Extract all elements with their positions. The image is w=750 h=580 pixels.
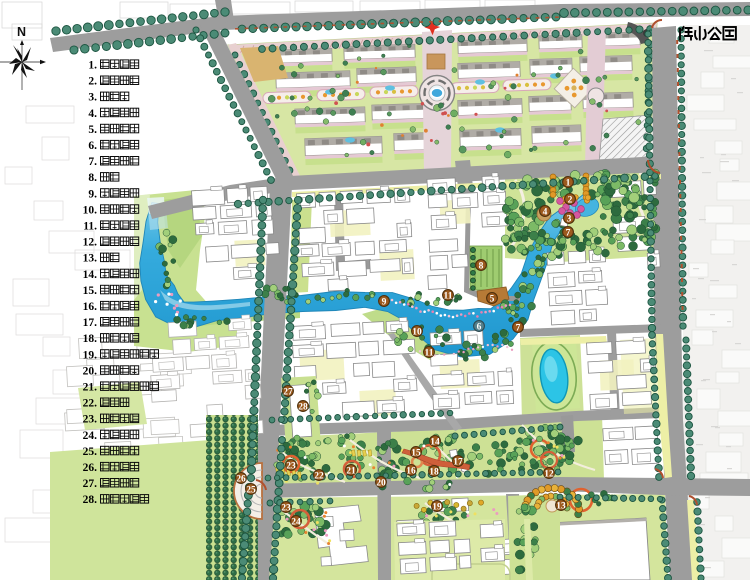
svg-text:10: 10 xyxy=(412,327,422,337)
svg-text:11: 11 xyxy=(444,291,453,301)
svg-text:23.: 23. xyxy=(83,414,98,426)
svg-text:17.: 17. xyxy=(83,317,98,329)
svg-text:12.: 12. xyxy=(83,237,98,249)
svg-text:28.: 28. xyxy=(83,494,98,506)
svg-text:6.: 6. xyxy=(88,140,97,152)
svg-text:26: 26 xyxy=(236,474,246,484)
svg-text:7.: 7. xyxy=(88,156,97,168)
svg-text:2.: 2. xyxy=(88,76,97,88)
svg-text:14: 14 xyxy=(430,437,440,447)
svg-text:21: 21 xyxy=(346,466,356,476)
svg-text:6: 6 xyxy=(477,322,482,332)
svg-text:2: 2 xyxy=(568,195,573,205)
svg-text:N: N xyxy=(17,25,26,39)
svg-text:7: 7 xyxy=(566,228,571,238)
svg-text:24.: 24. xyxy=(83,430,98,442)
svg-text:12: 12 xyxy=(544,469,554,479)
svg-text:8: 8 xyxy=(479,261,484,271)
svg-text:3.: 3. xyxy=(88,92,97,104)
svg-text:11.: 11. xyxy=(83,221,97,233)
svg-text:3: 3 xyxy=(567,214,572,224)
svg-text:18.: 18. xyxy=(83,333,98,345)
svg-text:23: 23 xyxy=(281,503,291,513)
svg-text:27: 27 xyxy=(283,387,293,397)
svg-text:22: 22 xyxy=(314,471,324,481)
svg-text:4.: 4. xyxy=(88,108,97,120)
svg-text:23: 23 xyxy=(286,461,296,471)
svg-text:9: 9 xyxy=(382,297,387,307)
svg-text:26.: 26. xyxy=(83,462,98,474)
svg-text:27.: 27. xyxy=(83,478,98,490)
svg-text:13.: 13. xyxy=(83,253,98,265)
svg-text:17: 17 xyxy=(453,457,463,467)
svg-text:19.: 19. xyxy=(83,349,98,361)
svg-text:13: 13 xyxy=(556,501,566,511)
svg-text:15: 15 xyxy=(411,448,421,458)
svg-text:15.: 15. xyxy=(83,285,98,297)
svg-text:5: 5 xyxy=(490,294,495,304)
svg-text:25.: 25. xyxy=(83,446,98,458)
svg-text:16.: 16. xyxy=(83,301,98,313)
svg-text:10.: 10. xyxy=(83,204,98,216)
svg-text:14.: 14. xyxy=(83,269,98,281)
svg-text:4: 4 xyxy=(543,207,548,217)
svg-text:5.: 5. xyxy=(88,124,97,136)
svg-text:8.: 8. xyxy=(88,172,97,184)
svg-text:11: 11 xyxy=(425,348,434,358)
svg-text:7: 7 xyxy=(516,323,521,333)
svg-text:24: 24 xyxy=(291,517,301,527)
svg-text:22.: 22. xyxy=(83,398,98,410)
svg-text:25: 25 xyxy=(246,485,256,495)
svg-text:20.: 20. xyxy=(83,365,98,377)
svg-text:16: 16 xyxy=(406,466,416,476)
svg-text:1: 1 xyxy=(566,178,571,188)
svg-text:1.: 1. xyxy=(88,60,97,72)
svg-text:20: 20 xyxy=(376,478,386,488)
svg-text:28: 28 xyxy=(298,402,308,412)
svg-text:18: 18 xyxy=(429,467,439,477)
svg-text:9.: 9. xyxy=(88,188,97,200)
svg-text:21.: 21. xyxy=(83,382,98,394)
svg-text:19: 19 xyxy=(432,502,442,512)
